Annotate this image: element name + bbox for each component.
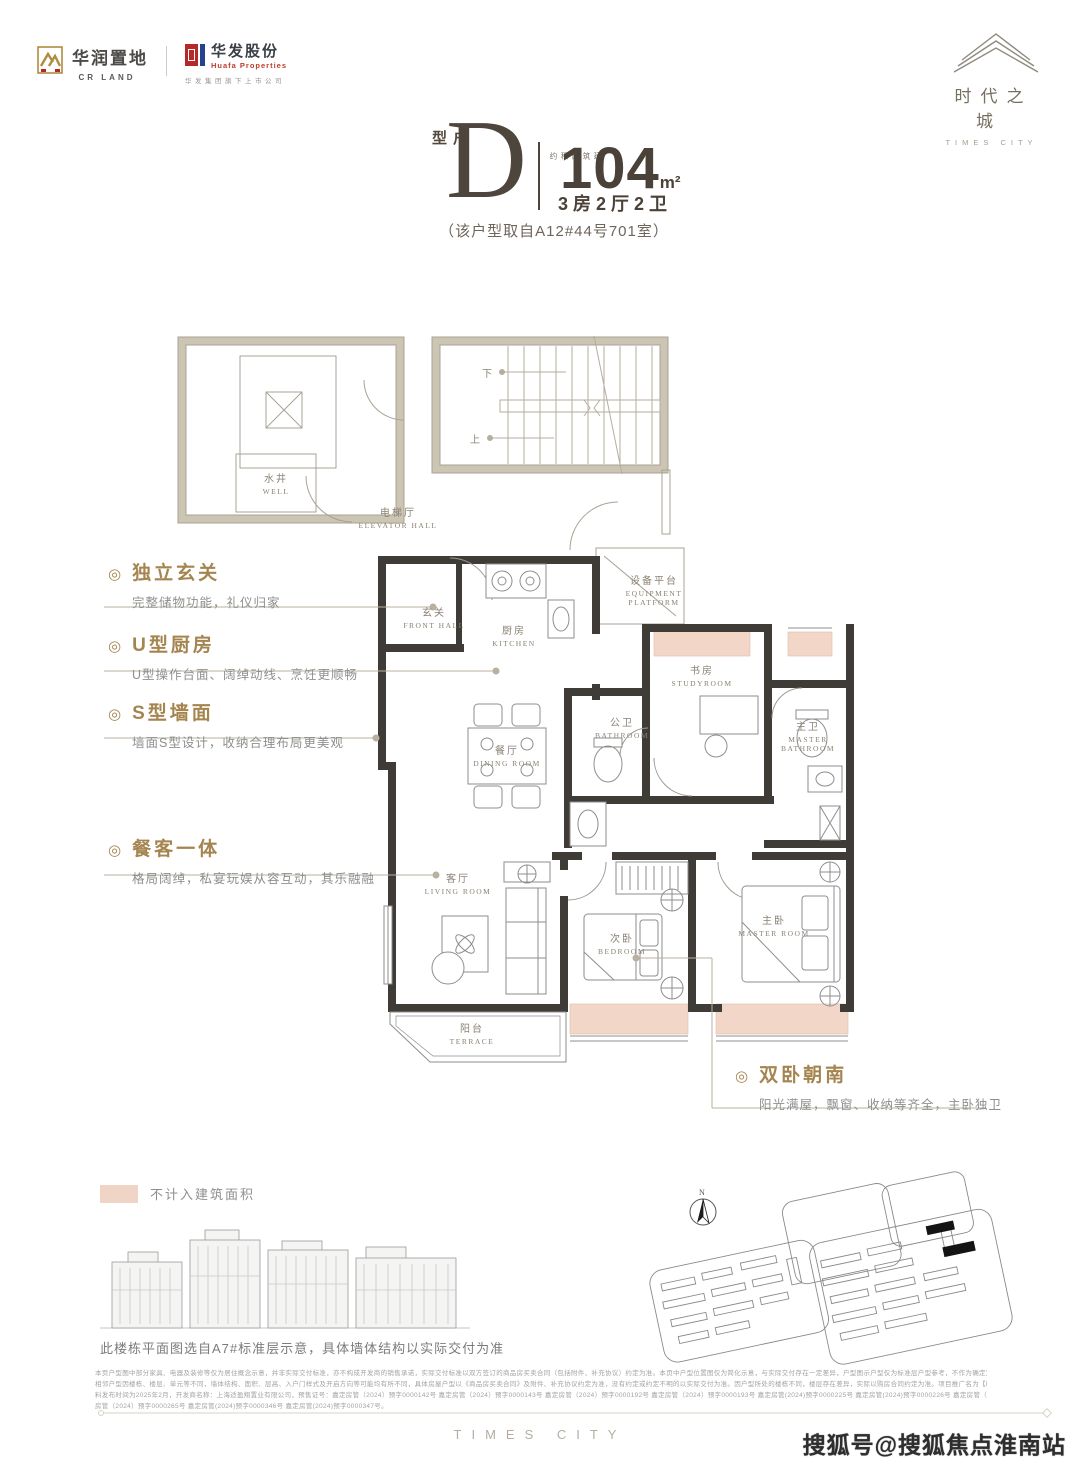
feature-title: 独立玄关 (132, 563, 220, 584)
feature-desc: U型操作台面、阔绰动线、烹饪更顺畅 (132, 664, 358, 683)
feature-desc: 完整储物功能，礼仪归家 (132, 592, 281, 611)
feature-south-bedrooms: ◎双卧朝南 阳光满屋，飘窗、收纳等齐全，主卧独卫 (735, 1060, 1002, 1113)
room-label-kitchen: 厨房KITCHEN (492, 626, 535, 648)
bullet-icon: ◎ (108, 842, 124, 859)
feature-desc: 格局阔绰，私宴玩娱从容互动，其乐融融 (132, 868, 375, 887)
bullet-icon: ◎ (108, 638, 124, 655)
room-label-elevator-hall: 电梯厅ELEVATOR HALL (358, 508, 437, 530)
room-label-terrace: 阳台TERRACE (450, 1024, 495, 1046)
disclaimer-line: 料发布时间为2025年2月，开发商名称：上海适盈翔置业有限公司，预售证号：嘉定房… (95, 1390, 987, 1401)
legend-label: 不计入建筑面积 (150, 1184, 255, 1203)
building-elevation (100, 1230, 470, 1328)
watermark: 搜狐号@搜狐焦点淮南站 (803, 1426, 1066, 1460)
roof-icon (954, 34, 1038, 72)
common-core-walls (182, 341, 664, 519)
stair-down-marker: 下 (482, 365, 492, 380)
feature-dining-living: ◎餐客一体 格局阔绰，私宴玩娱从容互动，其乐融融 (108, 834, 375, 887)
room-label-dining: 餐厅DINING ROOM (473, 746, 541, 768)
north-marker: N (699, 1188, 705, 1197)
stair-treads (488, 336, 661, 474)
feature-kitchen: ◎U型厨房 U型操作台面、阔绰动线、烹饪更顺畅 (108, 630, 358, 683)
feature-title: 餐客一体 (132, 839, 220, 860)
room-label-equipment-platform: 设备平台EQUIPMENT PLATFORM (617, 576, 691, 607)
room-label-front-hall: 玄关FRONT HALL (403, 608, 464, 630)
north-arrow-icon (690, 1199, 716, 1225)
room-label-bedroom: 次卧BEDROOM (598, 934, 646, 956)
feature-desc: 墙面S型设计，收纳合理布局更美观 (132, 732, 344, 751)
stair-up-marker: 上 (470, 431, 480, 446)
legend-swatch (100, 1185, 138, 1203)
disclaimer-line: 相邻户型因楼栋、楼层、单元等不同，墙体结构、面积、层高、入户门样式及开启方向等可… (95, 1379, 987, 1390)
feature-wall: ◎S型墙面 墙面S型设计，收纳合理布局更美观 (108, 698, 344, 751)
floor-plan-note: 此楼栋平面图选自A7#标准层示意，具体墙体结构以实际交付为准 (100, 1338, 504, 1357)
site-plan (647, 1170, 1014, 1367)
bullet-icon: ◎ (108, 566, 124, 583)
room-label-master-room: 主卧MASTER ROOM (738, 916, 809, 938)
disclaimer-text: 本页户型图中部分家具、电器及装修等仅为居住概念示意，并非实际交付标准，亦不构成开… (95, 1368, 987, 1412)
furniture (384, 564, 842, 1062)
bullet-icon: ◎ (108, 706, 124, 723)
disclaimer-line: 本页户型图中部分家具、电器及装修等仅为居住概念示意，并非实际交付标准，亦不构成开… (95, 1368, 987, 1379)
feature-desc: 阳光满屋，飘窗、收纳等齐全，主卧独卫 (759, 1094, 1002, 1113)
legend-bay-window: 不计入建筑面积 (100, 1184, 255, 1203)
brochure-page: 华润置地 CR LAND 华发股份 Huafa Properties 华发集团旗… (0, 0, 1080, 1466)
disclaimer-line: 房管（2024）预字0000265号 嘉定房管(2024)预字0000346号 … (95, 1401, 987, 1412)
room-label-living: 客厅LIVING ROOM (425, 874, 492, 896)
crland-logo-icon (38, 47, 62, 73)
feature-title: 双卧朝南 (759, 1065, 847, 1086)
room-label-bathroom: 公卫BATHROOM (595, 718, 649, 740)
room-label-well: 水井WELL (263, 474, 290, 496)
bullet-icon: ◎ (735, 1068, 751, 1085)
feature-entry-hall: ◎独立玄关 完整储物功能，礼仪归家 (108, 558, 281, 611)
room-label-master-bathroom: 主卫MASTER BATHROOM (771, 722, 845, 753)
feature-title: S型墙面 (132, 703, 214, 724)
room-label-study: 书房STUDYROOM (671, 666, 732, 688)
feature-title: U型厨房 (132, 635, 215, 656)
